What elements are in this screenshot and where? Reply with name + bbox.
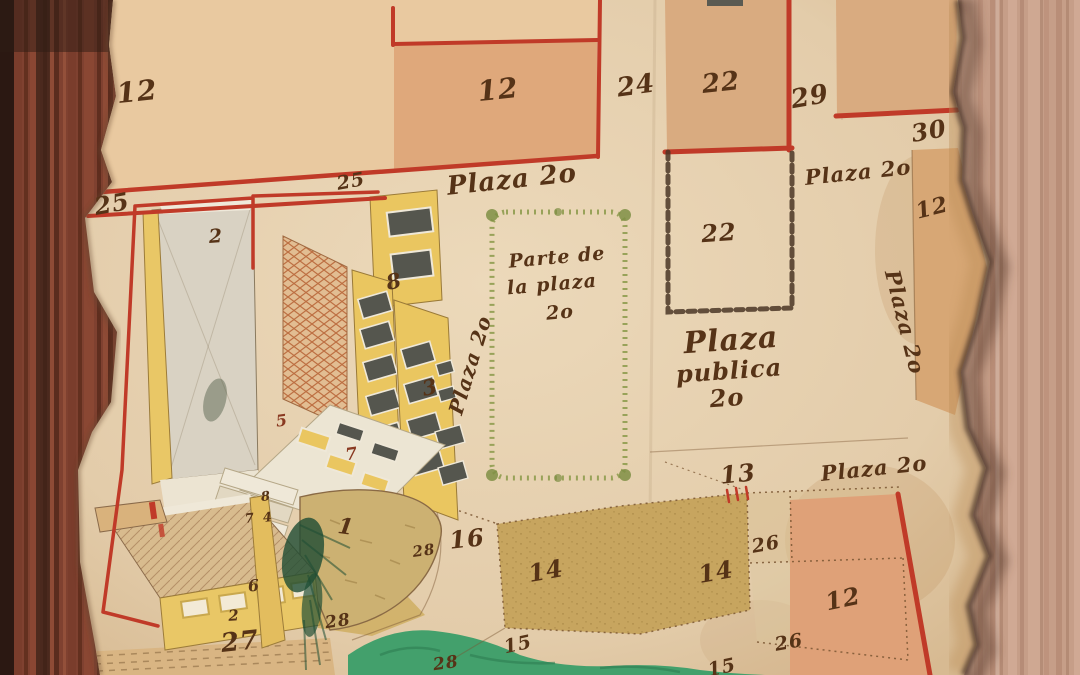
torn-fragment [707, 0, 743, 6]
plot-22-top [665, 0, 788, 152]
brick-wall [283, 236, 347, 428]
map-illustration [0, 0, 1080, 675]
framed-historical-map: 121224222930Plaza 2o12Plaza 2o2525Plaza … [0, 0, 1080, 675]
plot-12-topcenter [394, 40, 597, 170]
